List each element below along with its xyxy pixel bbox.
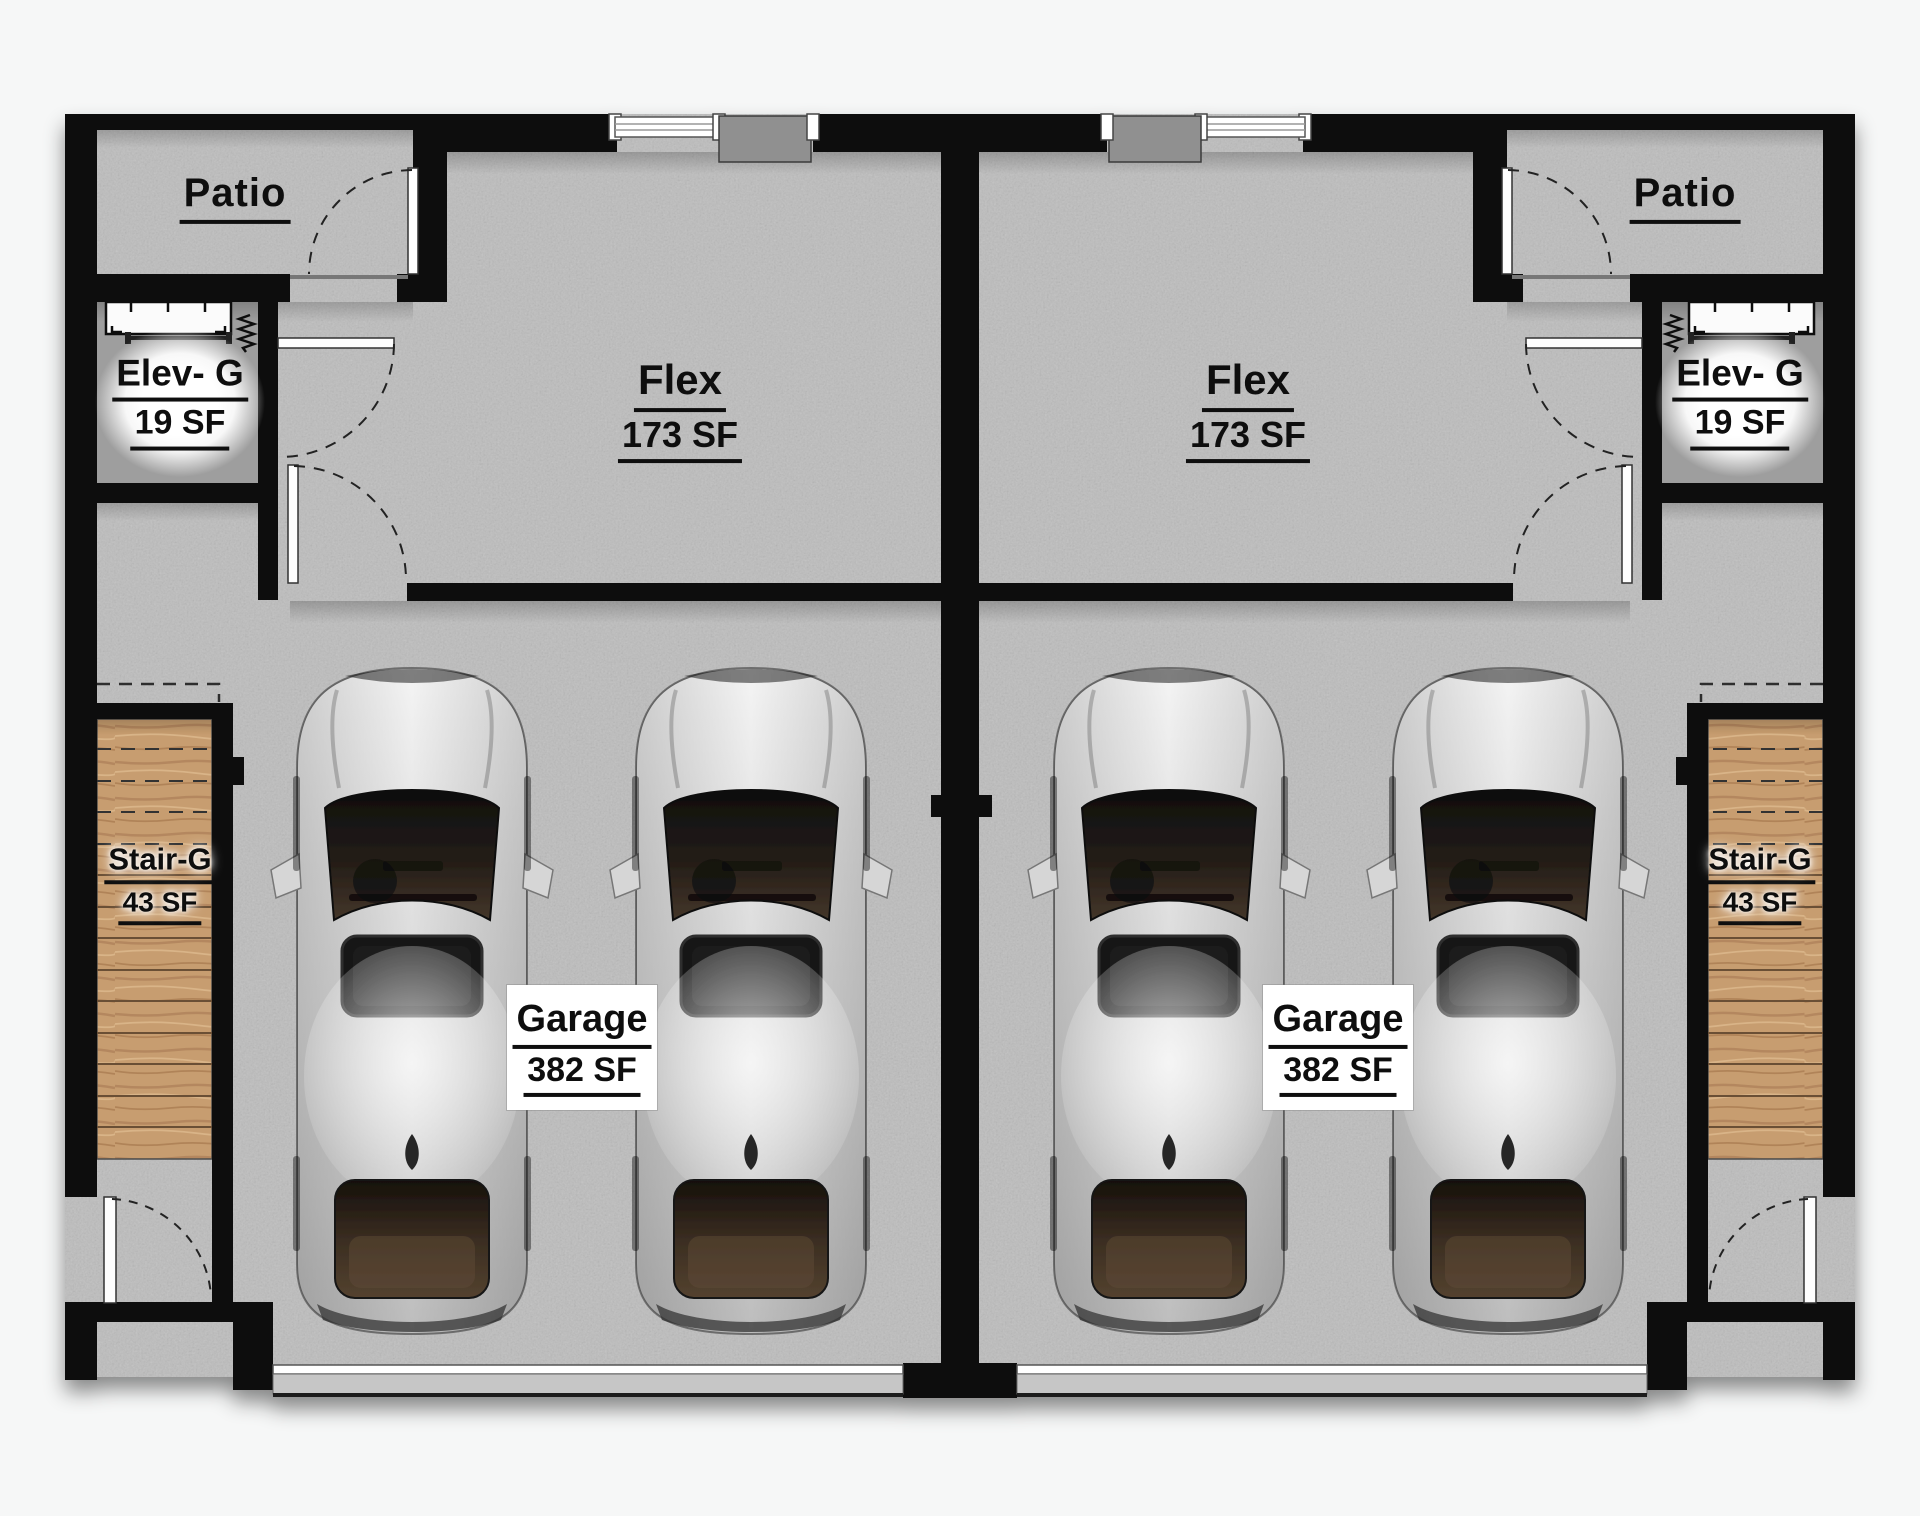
garage-door-left (273, 1365, 903, 1397)
party-wall (941, 114, 979, 1365)
garage-door-right (1017, 1365, 1647, 1397)
floor-plan-page: Patio Patio Flex 173 SF Flex 173 SF Elev… (0, 0, 1920, 1516)
floor-plan-svg (0, 0, 1920, 1516)
